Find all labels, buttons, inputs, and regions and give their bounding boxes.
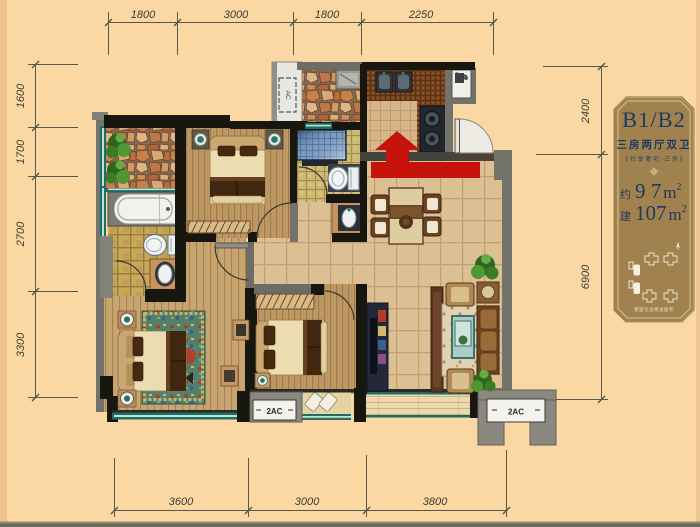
svg-text:6900: 6900 — [580, 264, 592, 289]
svg-text:2400: 2400 — [580, 98, 592, 124]
svg-text:3000: 3000 — [295, 496, 320, 508]
svg-text:1700: 1700 — [15, 139, 27, 164]
svg-text:三房两厅双卫: 三房两厅双卫 — [617, 138, 692, 151]
svg-text:AC: AC — [284, 90, 291, 99]
svg-text:3300: 3300 — [15, 332, 27, 357]
svg-text:2AC: 2AC — [266, 407, 282, 416]
svg-text:2250: 2250 — [408, 9, 434, 21]
svg-text:3600: 3600 — [169, 496, 194, 508]
svg-text:· 建面包含赠送面积 ·: · 建面包含赠送面积 · — [630, 306, 678, 313]
svg-text:3000: 3000 — [224, 9, 249, 21]
svg-text:《 社 享 奢 宅 · 三 房 》: 《 社 享 奢 宅 · 三 房 》 — [622, 155, 685, 163]
svg-text:1800: 1800 — [131, 9, 156, 21]
svg-text:3800: 3800 — [423, 496, 448, 508]
svg-text:2AC: 2AC — [508, 408, 524, 417]
svg-text:1800: 1800 — [315, 9, 340, 21]
svg-text:1600: 1600 — [15, 83, 27, 108]
svg-text:2700: 2700 — [15, 221, 27, 247]
svg-text:B1/B2: B1/B2 — [622, 107, 686, 132]
